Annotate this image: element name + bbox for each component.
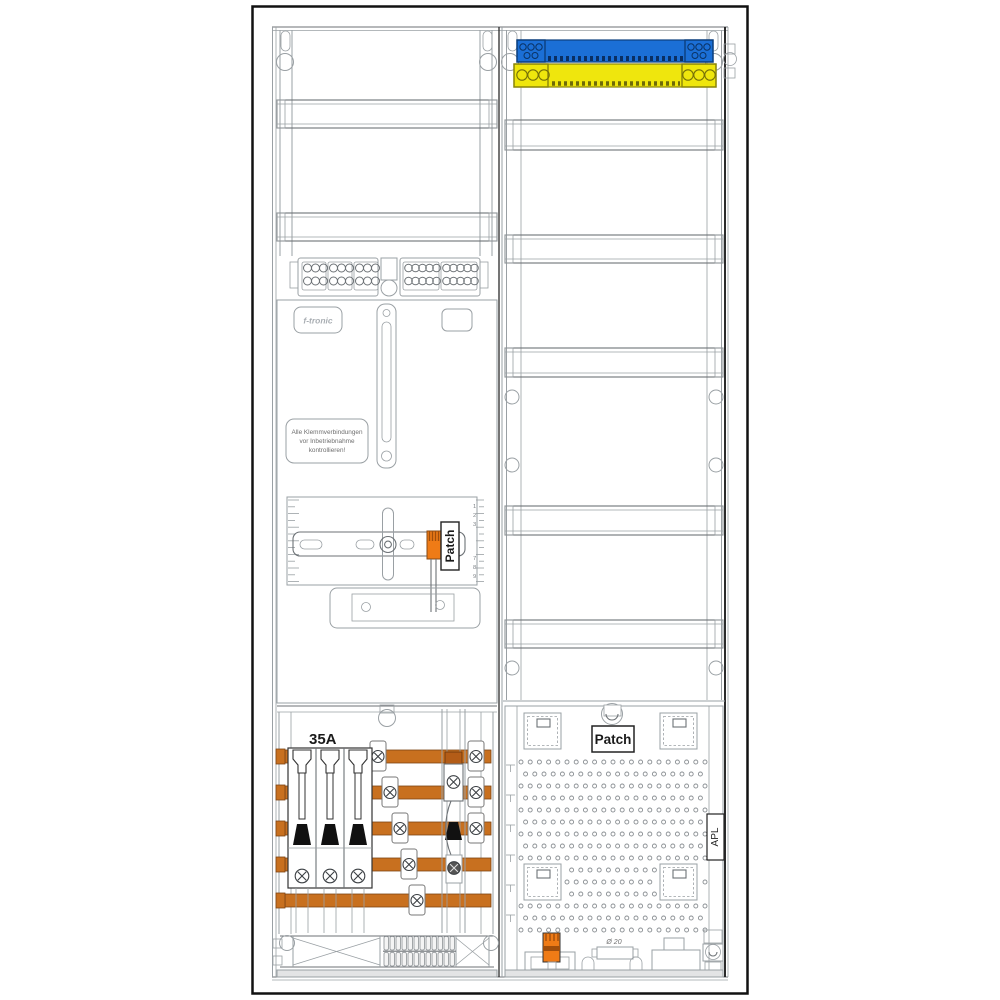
brand-logo-text: f-tronic (303, 316, 333, 326)
apl-side-label-text: APL (710, 827, 721, 846)
ruler-num-1: 1 (473, 504, 476, 510)
sticker-line-1: Alle Klemmverbindungen (291, 429, 362, 436)
sticker-line-2: vor Inbetriebnahme (299, 438, 355, 445)
ruler-num-3: 3 (473, 522, 476, 528)
patch-label-meter-text: Patch (443, 530, 457, 563)
gland-size-label: Ø 20 (605, 939, 621, 946)
pe-rail (514, 64, 716, 87)
sticker-line-3: kontrollieren! (309, 447, 346, 454)
screenshot-canvas: f-tronic Alle Klemmverbindungen vor Inbe… (0, 0, 1000, 1000)
apl-side-label: APL (707, 814, 724, 860)
left-plinth (277, 970, 497, 977)
neutral-rail (517, 40, 713, 62)
right-plinth (505, 970, 723, 977)
patch-label-apl-text: Patch (595, 732, 632, 747)
fuse-rating-label: 35A (309, 731, 337, 748)
ruler-num-8: 8 (473, 565, 476, 571)
patch-label-meter: Patch (441, 522, 459, 570)
meter-cabinet-drawing: f-tronic Alle Klemmverbindungen vor Inbe… (0, 0, 1000, 1000)
ruler-num-7: 7 (473, 556, 476, 562)
ruler-num-9: 9 (473, 574, 476, 580)
patch-label-apl: Patch (592, 726, 634, 752)
ruler-num-2: 2 (473, 513, 476, 519)
